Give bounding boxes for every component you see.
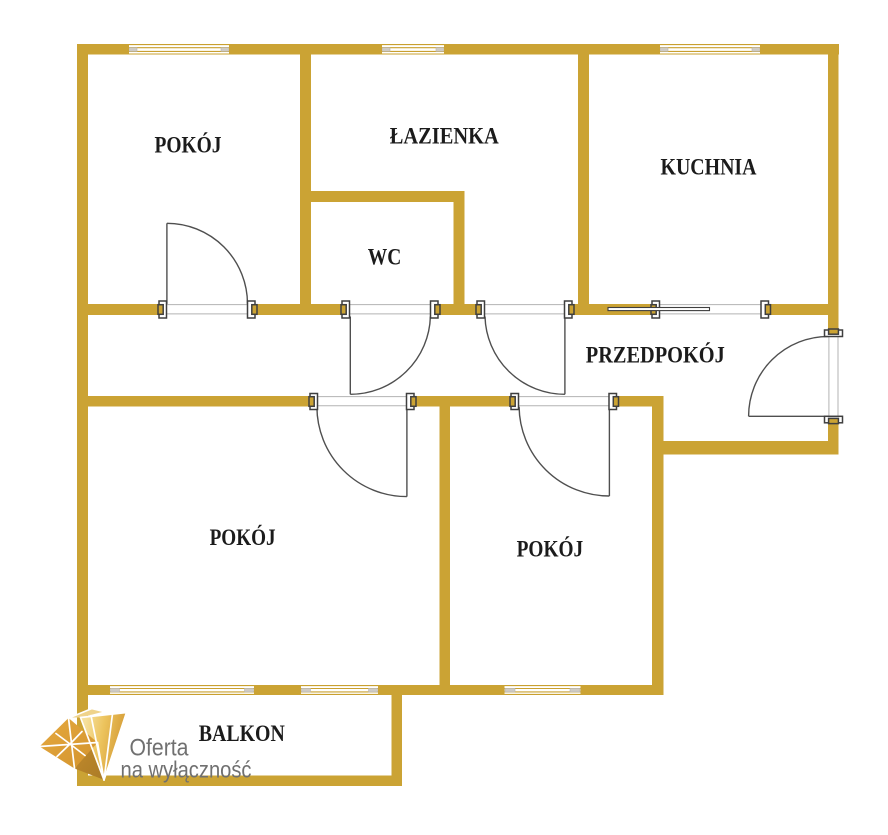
svg-text:POKÓJ: POKÓJ	[210, 524, 276, 550]
svg-text:POKÓJ: POKÓJ	[517, 535, 584, 561]
svg-text:WC: WC	[368, 245, 402, 270]
svg-text:ŁAZIENKA: ŁAZIENKA	[390, 124, 499, 149]
svg-text:POKÓJ: POKÓJ	[155, 132, 222, 158]
svg-text:PRZEDPOKÓJ: PRZEDPOKÓJ	[586, 342, 725, 368]
svg-text:na wyłączność: na wyłączność	[121, 757, 252, 783]
svg-text:KUCHNIA: KUCHNIA	[661, 155, 757, 180]
svg-text:BALKON: BALKON	[199, 721, 285, 746]
